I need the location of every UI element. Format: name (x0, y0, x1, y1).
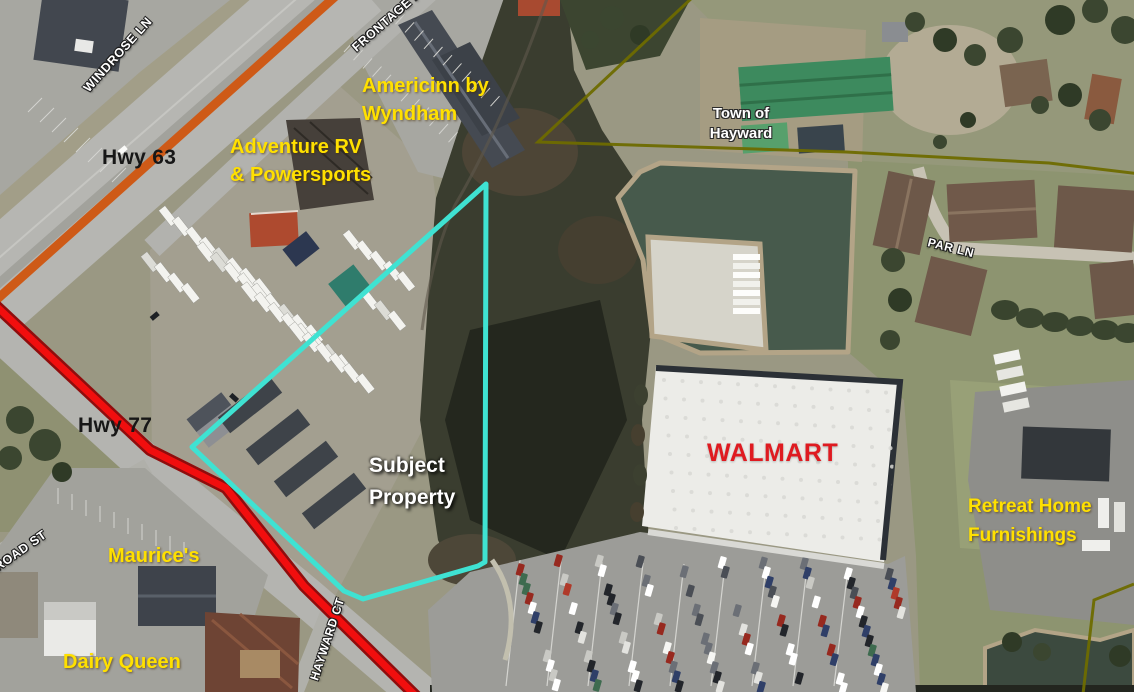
aerial-map-image: WINDROSE LN FRONTAGE RD Hwy 63 Americinn… (0, 0, 1134, 692)
municipal-boundary-line (538, 0, 1134, 174)
annotation-overlay (0, 0, 1134, 692)
municipal-boundary-line-south (1083, 584, 1134, 692)
subject-property-outline (192, 184, 486, 599)
hwy-63-route-line (0, 0, 338, 302)
